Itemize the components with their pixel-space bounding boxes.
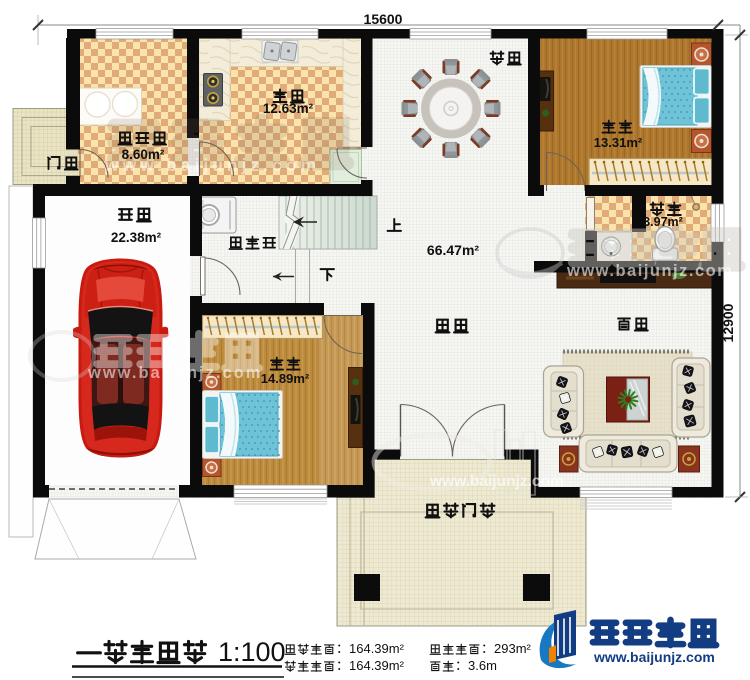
svg-text:15600: 15600 [364,11,403,27]
svg-text:1:100: 1:100 [218,637,286,667]
svg-text:www.baijunjz.com: www.baijunjz.com [593,649,715,665]
svg-text:：164.39m²: ：164.39m² [336,658,405,673]
svg-text:3.97m²: 3.97m² [643,215,683,229]
svg-text:8.60m²: 8.60m² [122,147,165,162]
svg-text:12.63m²: 12.63m² [263,101,314,116]
svg-text:www.baijunjz.com: www.baijunjz.com [566,262,733,280]
svg-text:14.89m²: 14.89m² [261,371,310,386]
svg-text:22.38m²: 22.38m² [111,230,162,245]
svg-text:：164.39m²: ：164.39m² [336,641,405,656]
svg-text:www.baijunjz.com: www.baijunjz.com [87,364,262,382]
svg-text:：3.6m: ：3.6m [455,658,497,673]
svg-text:12900: 12900 [720,303,736,342]
svg-text:13.31m²: 13.31m² [594,135,643,150]
svg-text:：293m²: ：293m² [481,641,532,656]
svg-text:www.baijunjz.com: www.baijunjz.com [429,473,564,490]
svg-text:66.47m²: 66.47m² [427,242,479,258]
